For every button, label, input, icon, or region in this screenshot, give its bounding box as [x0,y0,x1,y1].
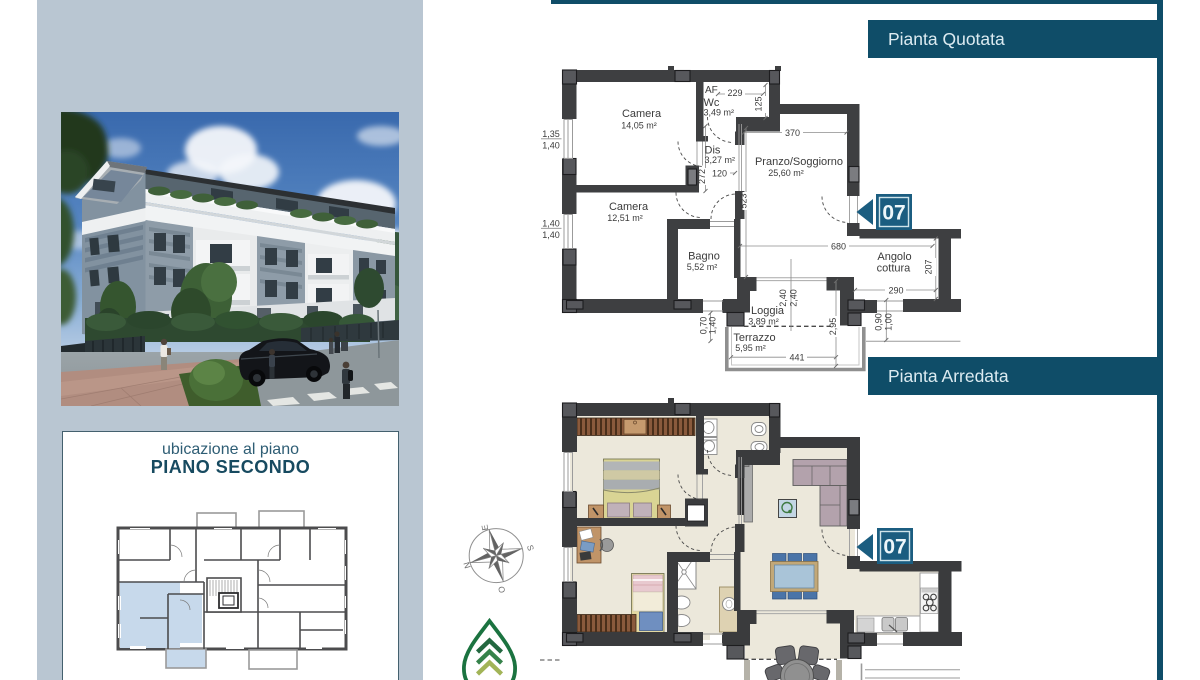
svg-text:1,40: 1,40 [708,317,718,335]
svg-text:12,51 m²: 12,51 m² [607,213,643,223]
svg-text:229: 229 [727,88,742,98]
svg-text:Loggia: Loggia [751,305,785,317]
svg-text:3,27 m²: 3,27 m² [705,155,736,165]
svg-text:Bagno: Bagno [688,251,720,263]
svg-text:O: O [496,585,507,594]
svg-text:Angolo: Angolo [877,251,911,263]
svg-text:3,89 m²: 3,89 m² [748,317,779,327]
svg-text:07: 07 [883,536,906,559]
svg-text:Pranzo/Soggiorno: Pranzo/Soggiorno [755,156,843,168]
svg-text:0,90: 0,90 [874,313,884,331]
svg-text:2,40: 2,40 [789,289,799,307]
svg-text:14,05 m²: 14,05 m² [621,121,657,131]
svg-text:1,35: 1,35 [542,129,560,139]
svg-text:25,60 m²: 25,60 m² [768,168,804,178]
svg-text:120: 120 [712,169,727,179]
svg-text:125: 125 [754,96,764,111]
svg-text:5,52 m²: 5,52 m² [687,262,718,272]
svg-text:523: 523 [739,193,749,208]
svg-text:272: 272 [697,169,707,184]
svg-text:290: 290 [888,286,903,296]
svg-text:AF: AF [705,85,718,96]
svg-text:Camera: Camera [609,201,649,213]
svg-text:3,49 m²: 3,49 m² [704,108,735,118]
svg-text:1,40: 1,40 [542,230,560,240]
svg-text:207: 207 [924,259,934,274]
svg-text:1,40: 1,40 [542,141,560,151]
svg-text:S: S [525,544,536,553]
svg-text:Camera: Camera [622,108,662,120]
svg-text:1,00: 1,00 [884,313,894,331]
svg-text:441: 441 [789,353,804,363]
svg-text:E: E [479,524,490,532]
svg-text:370: 370 [785,128,800,138]
svg-text:5,95 m²: 5,95 m² [735,343,766,353]
svg-text:1,40: 1,40 [542,219,560,229]
svg-text:2,95: 2,95 [828,318,838,336]
svg-text:680: 680 [831,242,846,252]
svg-text:cottura: cottura [877,263,912,275]
svg-text:07: 07 [882,202,905,225]
svg-text:N: N [461,561,472,570]
